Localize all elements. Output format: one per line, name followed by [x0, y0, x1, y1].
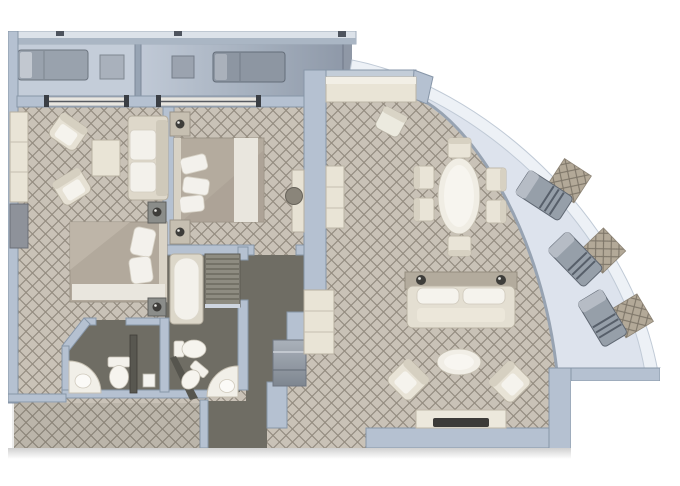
floorplan-image: [0, 0, 680, 486]
bidet: [174, 340, 206, 358]
television: [433, 418, 489, 427]
balcony1-side-table: [100, 55, 124, 79]
vanity-stool: [286, 188, 303, 205]
wall-living-bottom: [366, 428, 551, 448]
wall-strip-top: [8, 394, 66, 402]
wall-strip-stub: [200, 400, 208, 448]
bottom-drop-shadow: [8, 448, 571, 459]
sofa-group: [405, 272, 517, 328]
console-lamp-left: [416, 275, 426, 285]
wall-fixture: [143, 374, 155, 387]
wall-masterbath-right-b: [238, 300, 248, 390]
railing-cleat-1: [56, 31, 64, 36]
console-lamp-right: [496, 275, 506, 285]
balcony-railing-shadow: [8, 38, 356, 44]
wall-guestbath-left: [62, 346, 69, 392]
sofa: [128, 116, 168, 200]
nightstand-master-bottom: [170, 220, 190, 244]
bathtub: [170, 254, 203, 324]
luggage-cabinet: [10, 204, 28, 248]
bed-second-bedroom: [70, 222, 167, 302]
wall-corner-step: [549, 368, 571, 450]
open-closet: [273, 340, 306, 386]
nightstand-master-top: [170, 112, 190, 136]
guest-toilet: [108, 357, 130, 389]
sideboard: [326, 166, 344, 228]
wall-guestbath-top-b: [126, 318, 162, 325]
floorplan-svg: [0, 0, 680, 486]
balcony-divider: [135, 44, 141, 96]
wall-corridor-left-lower: [267, 382, 287, 428]
railing-cleat-3: [338, 31, 346, 37]
wardrobe: [10, 112, 28, 202]
nightstand-2a: [148, 202, 166, 223]
hallway-strip-shade: [12, 403, 200, 448]
balcony2-lounger: [213, 52, 285, 82]
nightstand-2b: [148, 298, 166, 316]
balcony2-side-table: [172, 56, 194, 78]
railing-cleat-2: [174, 31, 182, 36]
side-table: [92, 140, 120, 176]
bath-partition: [130, 335, 137, 393]
hall-cabinet: [304, 290, 334, 354]
wall-between-baths: [160, 318, 169, 392]
bed-master: [174, 138, 264, 222]
wall-master-right-column: [304, 70, 326, 290]
balcony1-lounger: [18, 50, 88, 80]
wall-master-bottom-right: [296, 245, 304, 255]
shower: [205, 254, 240, 308]
